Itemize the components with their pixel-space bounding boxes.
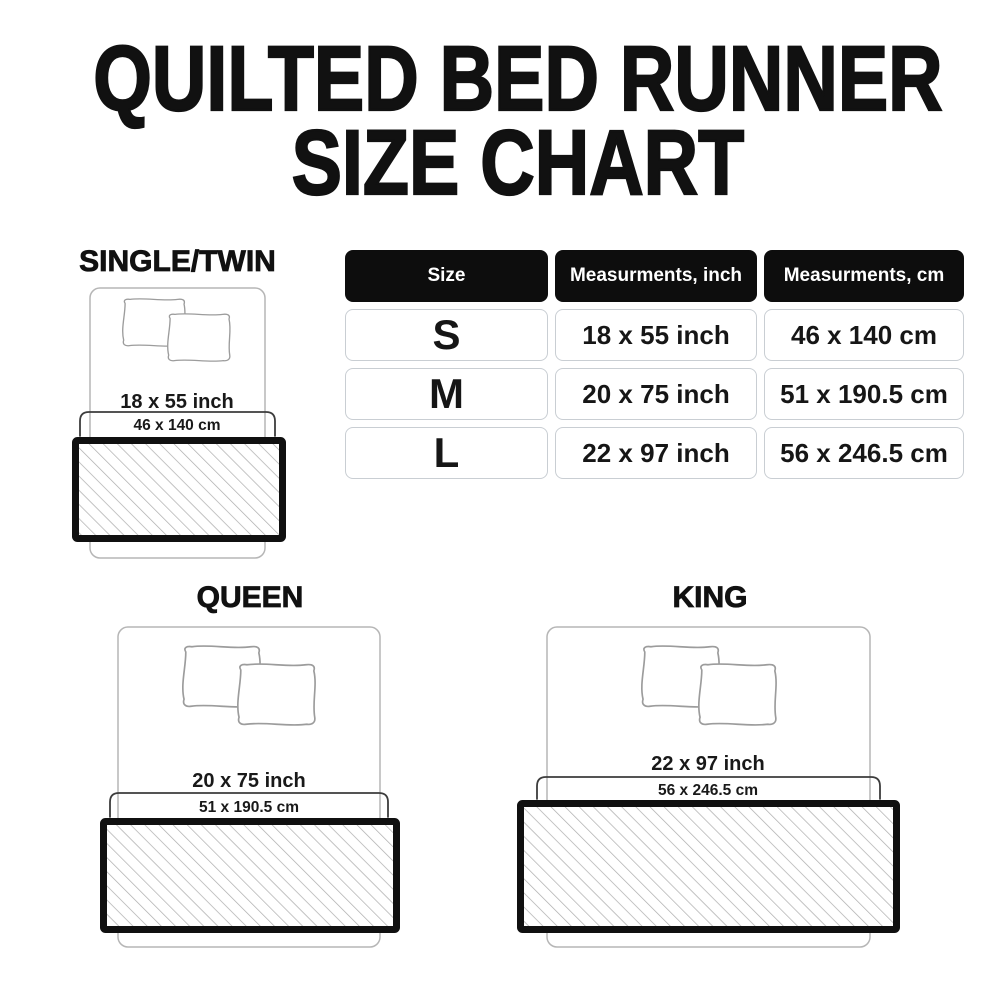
table-header-cm: Measurments, cm	[764, 250, 964, 302]
table-header-size: Size	[345, 250, 548, 302]
king-diagram: 22 x 97 inch 56 x 246.5 cm	[505, 620, 915, 950]
pillow-icon	[238, 664, 315, 725]
table-cell-cm-s: 46 x 140 cm	[764, 309, 964, 361]
bed-runner-swatch	[104, 822, 397, 930]
table-cell-inch-s: 18 x 55 inch	[555, 309, 757, 361]
queen-label: QUEEN	[95, 583, 405, 613]
cm-measurement-label: 51 x 190.5 cm	[199, 799, 299, 816]
single-twin-diagram: 18 x 55 inch 46 x 140 cm	[55, 283, 300, 565]
table-cell-cm-m: 51 x 190.5 cm	[764, 368, 964, 420]
table-cell-size-l: L	[345, 427, 548, 479]
cm-measurement-label: 46 x 140 cm	[133, 417, 220, 434]
bed-runner-swatch	[76, 441, 283, 539]
page-title: QUILTED BED RUNNER SIZE CHART	[0, 37, 1000, 205]
inch-measurement-label: 18 x 55 inch	[120, 391, 233, 413]
table-header-inch: Measurments, inch	[555, 250, 757, 302]
size-table: Size Measurments, inch Measurments, cm S…	[345, 250, 963, 479]
size-chart-infographic: QUILTED BED RUNNER SIZE CHART Size Measu…	[0, 0, 1000, 1000]
inch-measurement-label: 22 x 97 inch	[651, 753, 764, 775]
table-cell-cm-l: 56 x 246.5 cm	[764, 427, 964, 479]
queen-diagram: 20 x 75 inch 51 x 190.5 cm	[95, 620, 405, 950]
cm-measurement-label: 56 x 246.5 cm	[658, 782, 758, 799]
page-title-line-2: SIZE CHART	[93, 121, 942, 205]
bed-runner-swatch	[521, 804, 897, 930]
single-twin-label: SINGLE/TWIN	[55, 247, 300, 277]
table-cell-size-m: M	[345, 368, 548, 420]
pillow-icon	[168, 314, 230, 361]
inch-measurement-label: 20 x 75 inch	[192, 770, 305, 792]
pillow-icon	[699, 664, 776, 725]
table-cell-size-s: S	[345, 309, 548, 361]
king-label: KING	[505, 583, 915, 613]
page-title-line-1: QUILTED BED RUNNER	[93, 37, 942, 121]
table-cell-inch-m: 20 x 75 inch	[555, 368, 757, 420]
table-cell-inch-l: 22 x 97 inch	[555, 427, 757, 479]
